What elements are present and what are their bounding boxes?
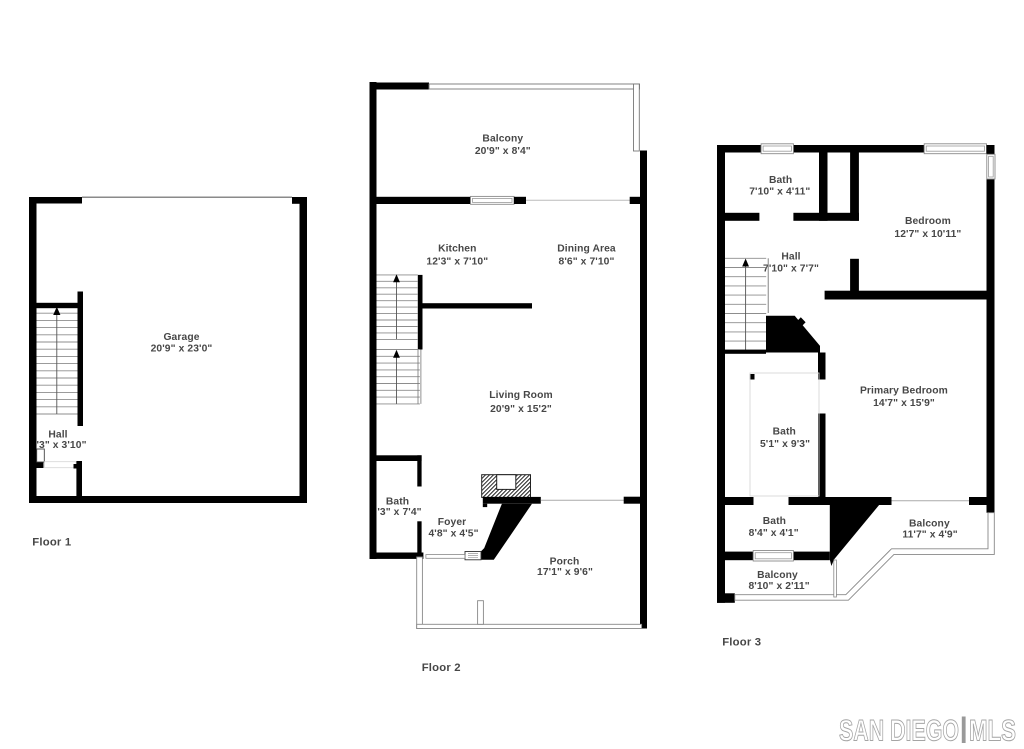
svg-text:Hall: Hall — [781, 251, 800, 262]
svg-text:MLS: MLS — [969, 715, 1016, 748]
svg-text:Hall: Hall — [48, 430, 67, 441]
svg-text:7'10" x 4'11": 7'10" x 4'11" — [749, 187, 810, 198]
svg-text:Dining Area: Dining Area — [557, 244, 616, 255]
svg-text:14'7" x 15'9": 14'7" x 15'9" — [873, 398, 935, 409]
svg-text:Balcony: Balcony — [909, 518, 950, 529]
svg-text:8'6" x 7'10": 8'6" x 7'10" — [559, 256, 615, 267]
svg-text:8'10" x 2'11": 8'10" x 2'11" — [748, 581, 809, 592]
svg-text:Bath: Bath — [386, 497, 409, 508]
svg-text:Foyer: Foyer — [438, 517, 467, 528]
svg-text:SAN DIEGO: SAN DIEGO — [839, 715, 959, 748]
svg-text:Porch: Porch — [550, 556, 580, 567]
svg-text:12'3" x 7'10": 12'3" x 7'10" — [426, 256, 488, 267]
svg-text:Living Room: Living Room — [489, 390, 552, 401]
svg-text:20'9" x 15'2": 20'9" x 15'2" — [490, 404, 552, 415]
svg-text:Balcony: Balcony — [482, 133, 523, 144]
svg-text:4'8" x 4'5": 4'8" x 4'5" — [428, 528, 478, 539]
svg-text:Garage: Garage — [163, 332, 199, 343]
svg-text:Floor 1: Floor 1 — [32, 537, 71, 549]
svg-text:7'10" x 7'7": 7'10" x 7'7" — [763, 263, 819, 274]
svg-text:20'9" x 23'0": 20'9" x 23'0" — [151, 344, 213, 355]
svg-text:Balcony: Balcony — [757, 570, 798, 581]
svg-text:17'1" x 9'6": 17'1" x 9'6" — [537, 567, 593, 578]
svg-text:Kitchen: Kitchen — [438, 244, 476, 255]
svg-text:Primary Bedroom: Primary Bedroom — [860, 385, 948, 396]
svg-text:Bedroom: Bedroom — [905, 216, 951, 227]
svg-text:Bath: Bath — [769, 175, 792, 186]
svg-text:8'4" x 4'1": 8'4" x 4'1" — [749, 528, 799, 539]
svg-text:Floor 2: Floor 2 — [422, 662, 461, 674]
svg-text:12'7" x 10'11": 12'7" x 10'11" — [894, 229, 961, 240]
svg-text:5'1" x 9'3": 5'1" x 9'3" — [760, 439, 810, 450]
svg-text:'3" x 7'4": '3" x 7'4" — [377, 507, 421, 518]
svg-text:Bath: Bath — [763, 516, 786, 527]
svg-text:11'7" x 4'9": 11'7" x 4'9" — [902, 529, 957, 540]
svg-text:20'9" x 8'4": 20'9" x 8'4" — [475, 146, 531, 157]
svg-text:Bath: Bath — [773, 427, 796, 438]
svg-text:Floor 3: Floor 3 — [722, 637, 761, 649]
